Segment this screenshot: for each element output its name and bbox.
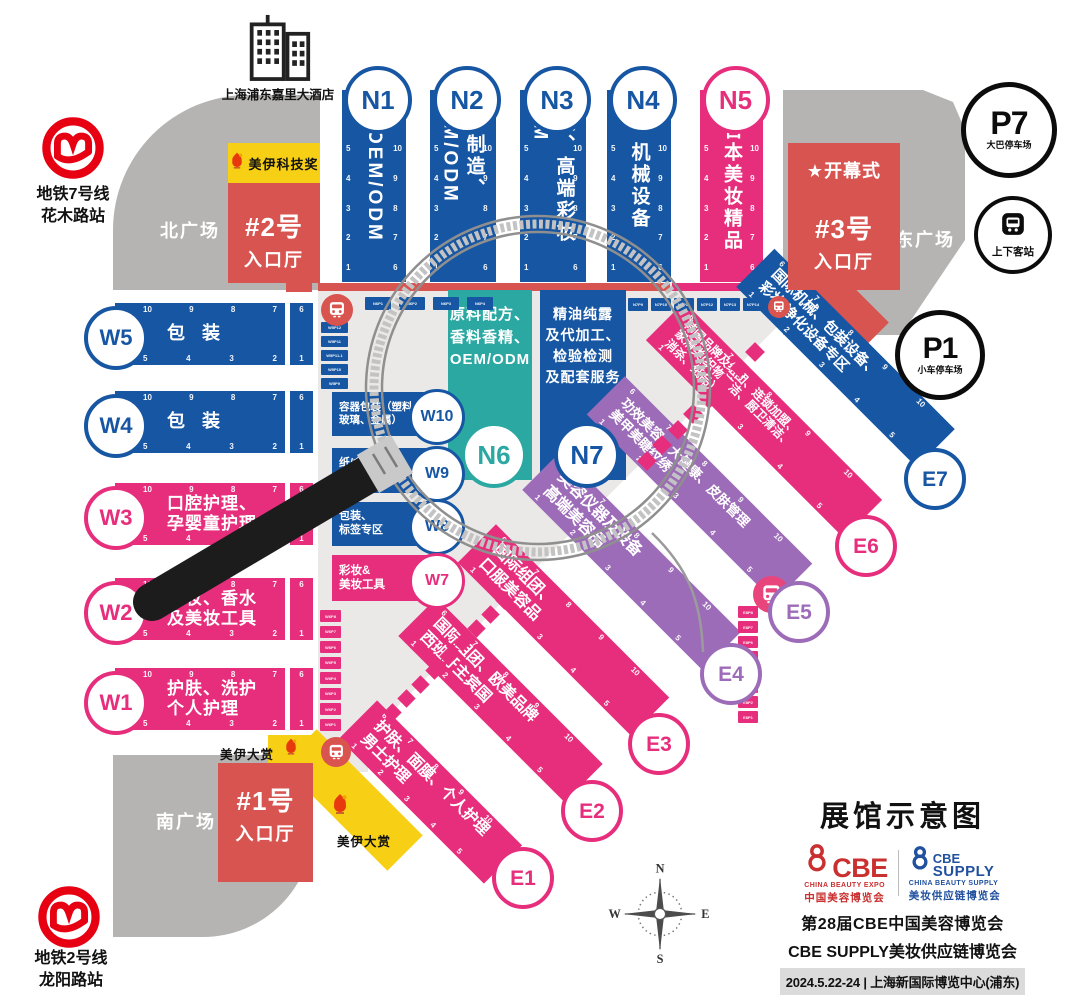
hall-number: 3 — [671, 491, 681, 501]
hall-number: 10 — [658, 144, 667, 153]
service-tag: N7P14 — [743, 298, 763, 311]
hall-number: 7 — [811, 294, 821, 304]
service-tag: N6P4 — [467, 297, 493, 310]
hall-numbers: 10987 — [143, 670, 277, 679]
north-plaza-label: 北广场 — [160, 217, 220, 243]
service-tag: E8P1 — [738, 711, 758, 723]
cbe-supply-name2: SUPPLY — [933, 865, 995, 879]
hall-label-line: 及美妆工具 — [167, 609, 257, 629]
hall-number: 6 — [290, 305, 313, 314]
hall-number: 1 — [611, 263, 615, 272]
hall-e4-badge: E4 — [700, 643, 762, 705]
hall-numbers: 5432 — [143, 534, 277, 543]
hall-n1-badge: N1 — [344, 66, 412, 134]
hall-number: 9 — [483, 174, 492, 183]
hall-label-line: 美妆工具 — [339, 578, 385, 592]
cbe-sub2: 中国美容博览会 — [804, 890, 888, 905]
hall-number: 9 — [189, 393, 193, 402]
hall-numbers: 54321 — [524, 144, 528, 272]
hall-number: 7 — [273, 670, 277, 679]
hall-number: 5 — [143, 534, 147, 543]
entrance-1-hall: 入口厅 — [218, 820, 313, 846]
hall-numbers: 5432 — [143, 629, 277, 638]
hall-number: 7 — [531, 567, 541, 577]
hall-number: 1 — [290, 534, 313, 543]
entrance-3-hall: 入口厅 — [788, 248, 900, 274]
metro-line7-station: 花木路站 — [18, 206, 128, 228]
metro-line2-station: 龙阳路站 — [16, 970, 126, 992]
hall-number: 2 — [704, 233, 708, 242]
service-tag: N6P2 — [399, 297, 425, 310]
cbe-sub1: CHINA BEAUTY EXPO — [804, 882, 888, 889]
service-tag: E8P8 — [738, 606, 758, 618]
hall-label-line: 包装、 — [339, 510, 383, 524]
hall-label-line: 标签专区 — [339, 524, 383, 538]
grand-award-label: 美伊大赏 — [337, 831, 391, 850]
hall-number: 8 — [750, 204, 759, 213]
hall-number: 9 — [189, 305, 193, 314]
hall-number: 8 — [658, 204, 667, 213]
entrance-2-hall: 入口厅 — [228, 246, 320, 272]
entrance-2: #2号 入口厅 — [228, 183, 320, 283]
hall-number: 9 — [189, 670, 193, 679]
hall-number: 3 — [229, 354, 233, 363]
service-tag: W5P10 — [321, 364, 348, 375]
hall-number: 2 — [781, 325, 791, 335]
hall-number: 7 — [750, 233, 759, 242]
cbe-supply-emblem-icon — [909, 843, 931, 878]
meiyi-award-logo-icon — [283, 737, 299, 761]
hall-number: 8 — [231, 305, 235, 314]
expo-date-venue: 2024.5.22-24 | 上海新国际博览中心(浦东) — [780, 968, 1025, 995]
hall-w1-cap: 61 — [290, 668, 313, 730]
hall-label-line: 精油纯露 — [540, 304, 626, 325]
service-tag: W5P11-1 — [321, 350, 348, 361]
hall-number: 6 — [483, 263, 492, 272]
opening-ceremony-label: 开幕式 — [824, 161, 881, 181]
hall-number: 2 — [375, 768, 385, 778]
hall-w3-cap: 61 — [290, 483, 313, 545]
hall-w5-badge: W5 — [84, 306, 148, 370]
service-tag: W6P2 — [320, 703, 341, 715]
hall-number: 8 — [631, 531, 641, 541]
hall-number: 1 — [434, 263, 438, 272]
cbe-supply-logo: CBE SUPPLY CHINA BEAUTY SUPPLY 美妆供应链博览会 — [909, 843, 1001, 903]
hall-numbers: 10987 — [143, 393, 277, 402]
compass-n: N — [656, 862, 665, 875]
hall-number: 8 — [393, 204, 402, 213]
hall-number: 9 — [456, 787, 466, 797]
hall-number: 2 — [273, 629, 277, 638]
hall-numbers: 54321 — [434, 144, 438, 272]
hall-label-line: 香料香精、 — [448, 327, 532, 350]
hall-numbers: 109876 — [483, 144, 492, 272]
metro-line2-label: 地铁2号线 龙阳路站 — [16, 948, 126, 991]
hall-numbers: 5432 — [143, 354, 277, 363]
hall-number: 8 — [573, 204, 582, 213]
hall-number: 5 — [524, 144, 528, 153]
hall-n3-badge: N3 — [523, 66, 591, 134]
hall-number: 10 — [143, 305, 152, 314]
service-tag: W6P5 — [320, 657, 341, 669]
hall-number: 1 — [290, 442, 313, 451]
meiyi-award-logo-icon — [330, 792, 350, 821]
hall-number: 6 — [290, 670, 313, 679]
hall-w8-badge: W8 — [409, 499, 465, 555]
hall-number: 4 — [428, 820, 438, 830]
metro-line7-label: 地铁7号线 花木路站 — [18, 184, 128, 227]
compass-w: W — [608, 907, 621, 921]
hall-number: 4 — [434, 174, 438, 183]
hall-w8-label: 包装、标签专区 — [339, 502, 383, 546]
hall-numbers: 5432 — [143, 719, 277, 728]
east-plaza-label: 东广场 — [895, 226, 955, 252]
parking-p1: P1 小车停车场 — [895, 310, 985, 400]
hall-number: 4 — [503, 733, 513, 743]
hall-number: 3 — [535, 632, 545, 642]
hall-number: 4 — [611, 174, 615, 183]
service-tag: W6P7 — [320, 626, 341, 638]
hall-number: 8 — [500, 670, 510, 680]
hall-number: 3 — [229, 629, 233, 638]
grand-award-badge — [268, 735, 313, 763]
hall-number: 2 — [273, 534, 277, 543]
hall-number: 1 — [704, 263, 708, 272]
hall-number: 6 — [290, 393, 313, 402]
entrance-1-name: #1号 — [218, 781, 313, 818]
entrance-1: #1号 入口厅 — [218, 763, 313, 882]
cbe-logo: CBE CHINA BEAUTY EXPO 中国美容博览会 — [804, 841, 888, 905]
hall-number: 9 — [666, 565, 676, 575]
hall-n7-badge: N7 — [554, 422, 620, 488]
hall-n5-badge: N5 — [702, 66, 770, 134]
hall-number: 4 — [524, 174, 528, 183]
hall-number: 7 — [470, 639, 480, 649]
hall-number: 2 — [273, 354, 277, 363]
hall-e3-badge: E3 — [628, 713, 690, 775]
hall-number: 8 — [699, 459, 709, 469]
hall-number: 9 — [880, 362, 890, 372]
hall-number: 3 — [229, 719, 233, 728]
pickup-dropoff-station: 上下客站 — [974, 196, 1052, 274]
meiyi-award-logo-icon — [229, 151, 245, 175]
hotel-label: 上海浦东嘉里大酒店 — [212, 84, 344, 103]
hall-number: 1 — [290, 629, 313, 638]
parking-p1-code: P1 — [923, 335, 958, 362]
hall-label-line: 口腔护理、 — [167, 494, 257, 514]
hall-number: 5 — [143, 442, 147, 451]
hall-number: 5 — [346, 144, 350, 153]
hall-w7-badge: W7 — [409, 553, 465, 609]
hall-numbers: 109876 — [573, 144, 582, 272]
hall-number: 2 — [611, 233, 615, 242]
hall-w10-badge: W10 — [409, 389, 465, 445]
hall-w4-badge: W4 — [84, 394, 148, 458]
service-tag: W6P3 — [320, 688, 341, 700]
hall-label-line: OEM/ODM — [448, 349, 532, 372]
hall-number: 2 — [273, 442, 277, 451]
hall-number: 4 — [707, 528, 717, 538]
metro-line2-icon — [36, 884, 102, 955]
service-tag: W6P1 — [320, 719, 341, 731]
hall-number: 9 — [658, 174, 667, 183]
expo-name-line1: 第28届CBE中国美容博览会 — [780, 910, 1025, 934]
bus-station-icon — [1000, 211, 1026, 242]
hall-number: 3 — [611, 204, 615, 213]
hall-numbers: 109876 — [658, 144, 667, 272]
hall-number: 3 — [402, 794, 412, 804]
hall-label-line: 孕婴童护理 — [167, 514, 257, 534]
hall-w2-cap: 61 — [290, 578, 313, 640]
hall-number: 5 — [143, 354, 147, 363]
hall-number: 7 — [393, 233, 402, 242]
metro-line2-line: 地铁2号线 — [16, 948, 126, 970]
service-tag: W6P4 — [320, 672, 341, 684]
hall-e2-badge: E2 — [561, 780, 623, 842]
metro-line7-icon — [40, 115, 106, 186]
hall-w3-badge: W3 — [84, 486, 148, 550]
hall-number: 2 — [524, 233, 528, 242]
hall-number: 4 — [186, 629, 190, 638]
hall-number: 8 — [231, 485, 235, 494]
cbe-name: CBE — [832, 857, 888, 880]
venue-map: 北广场 东广场 南广场 美伊科技奖 #2号 入口厅 ★开幕式 #3号 入口厅 #… — [0, 0, 1080, 1005]
hall-number: 7 — [483, 233, 492, 242]
hall-number: 5 — [611, 144, 615, 153]
hall-number: 2 — [434, 233, 438, 242]
hall-number: 1 — [290, 354, 313, 363]
service-tag: N7P13 — [720, 298, 740, 311]
hall-number: 10 — [143, 580, 152, 589]
service-tag: E8P7 — [738, 621, 758, 633]
hall-number: 4 — [186, 354, 190, 363]
entrance-2-name: #2号 — [228, 207, 320, 244]
hall-number: 8 — [231, 580, 235, 589]
service-tag: N7P11 — [674, 298, 694, 311]
hall-label-line: 检验检测 — [540, 346, 626, 367]
hall-w9-badge: W9 — [409, 446, 465, 502]
hall-number: 4 — [638, 598, 648, 608]
compass-e: E — [701, 907, 709, 921]
hall-numbers: 109876 — [393, 144, 402, 272]
hall-e1-badge: E1 — [492, 847, 554, 909]
legend: 展馆示意图 CBE CHINA BEAUTY EXPO 中国美容博览会 CBE … — [780, 793, 1025, 995]
service-tag: N6P1 — [365, 297, 391, 310]
hall-number: 5 — [143, 629, 147, 638]
hall-number: 9 — [750, 174, 759, 183]
hall-number: 2 — [696, 382, 706, 392]
tech-award-badge: 美伊科技奖 — [228, 143, 320, 183]
hall-number: 10 — [483, 144, 492, 153]
grand-award-label: 美伊大赏 — [220, 744, 274, 763]
parking-p7-label: 大巴停车场 — [986, 138, 1031, 151]
hall-w9-label: 纸/盒/( — [339, 448, 364, 493]
hotel-icon — [246, 10, 312, 89]
hall-number: 4 — [775, 461, 785, 471]
hall-number: 3 — [736, 422, 746, 432]
hall-number: 2 — [567, 528, 577, 538]
hall-numbers: 10987 — [143, 485, 277, 494]
star-icon: ★ — [807, 161, 824, 181]
compass-s: S — [657, 952, 664, 966]
compass-rose: N E S W — [608, 862, 712, 971]
hall-label-line: 护肤、洗护 — [167, 679, 257, 699]
hall-number: 2 — [273, 719, 277, 728]
hall-number: 10 — [573, 144, 582, 153]
hall-number: 7 — [405, 737, 415, 747]
hall-label-line: 彩妆& — [339, 564, 385, 578]
hall-number: 10 — [143, 393, 152, 402]
hall-number: 3 — [346, 204, 350, 213]
parking-p1-label: 小车停车场 — [917, 363, 962, 376]
hall-number: 8 — [563, 600, 573, 610]
hall-w5-cap: 61 — [290, 303, 313, 365]
hall-number: 7 — [273, 580, 277, 589]
hall-number: 8 — [430, 762, 440, 772]
hall-number: 5 — [434, 144, 438, 153]
parking-p7-code: P7 — [990, 109, 1027, 138]
hall-number: 9 — [735, 495, 745, 505]
hall-number: 7 — [658, 233, 667, 242]
hall-number: 5 — [704, 144, 708, 153]
hall-number: 7 — [273, 485, 277, 494]
hall-number: 7 — [273, 393, 277, 402]
hall-number: 10 — [393, 144, 402, 153]
hall-label-line: 及代加工、 — [540, 325, 626, 346]
hall-number: 2 — [346, 233, 350, 242]
hall-label-line: 及配套服务 — [540, 367, 626, 388]
hall-number: 7 — [573, 233, 582, 242]
hall-number: 8 — [483, 204, 492, 213]
hall-number: 1 — [290, 719, 313, 728]
hall-number: 9 — [596, 633, 606, 643]
service-tag: N7P9 — [628, 298, 648, 311]
service-tag: N6P3 — [433, 297, 459, 310]
hall-number: 8 — [764, 390, 774, 400]
hall-number: 7 — [597, 497, 607, 507]
hall-number: 9 — [803, 429, 813, 439]
hall-number: 3 — [603, 563, 613, 573]
hall-number: 4 — [346, 174, 350, 183]
hall-number: 4 — [852, 395, 862, 405]
hall-w1-badge: W1 — [84, 671, 148, 735]
service-tag: W5P11 — [321, 336, 348, 347]
hall-numbers: 54321 — [346, 144, 350, 272]
hall-n4-badge: N4 — [609, 66, 677, 134]
hall-number: 4 — [186, 719, 190, 728]
metro-line7-line: 地铁7号线 — [18, 184, 128, 206]
bus-icon — [768, 296, 790, 318]
hall-number: 6 — [290, 580, 313, 589]
bus-icon — [321, 294, 353, 326]
hall-number: 4 — [186, 534, 190, 543]
hall-w4-cap: 61 — [290, 391, 313, 453]
hall-label-line: /( — [339, 471, 364, 485]
hall-number: 7 — [726, 351, 736, 361]
hall-e7-badge: E7 — [904, 448, 966, 510]
hall-numbers: 54321 — [611, 144, 615, 272]
hall-number: 10 — [143, 485, 152, 494]
hall-number: 1 — [346, 263, 350, 272]
hall-label-line: 个人护理 — [167, 699, 257, 719]
hall-number: 3 — [524, 204, 528, 213]
hall-number: 4 — [568, 665, 578, 675]
expo-name-line2: CBE SUPPLY美妆供应链博览会 — [780, 938, 1025, 962]
hall-number: 3 — [229, 534, 233, 543]
tech-award-label: 美伊科技奖 — [248, 154, 318, 173]
logo-divider — [898, 850, 899, 896]
hall-number: 4 — [704, 174, 708, 183]
pickup-dropoff-label: 上下客站 — [992, 244, 1034, 259]
cbe-emblem-icon — [804, 841, 830, 880]
hall-number: 6 — [658, 263, 667, 272]
service-tag: N7P10 — [651, 298, 671, 311]
hall-number: 8 — [231, 393, 235, 402]
hall-number: 6 — [573, 263, 582, 272]
hall-label-line: 彩妆、香水 — [167, 589, 257, 609]
service-tag: N7P12 — [697, 298, 717, 311]
hall-numbers: 54321 — [704, 144, 708, 272]
entrance-3: ★开幕式 #3号 入口厅 — [788, 143, 900, 290]
hall-number: 3 — [472, 702, 482, 712]
hall-number: 9 — [189, 485, 193, 494]
hall-number: 9 — [573, 174, 582, 183]
hall-number: 9 — [393, 174, 402, 183]
hall-label-line: 包 装 — [167, 323, 226, 345]
hall-number: 8 — [845, 328, 855, 338]
hall-number: 3 — [817, 360, 827, 370]
hall-label-line: 纸/盒 — [339, 457, 364, 471]
hall-e6-badge: E6 — [835, 515, 897, 577]
hall-number: 6 — [290, 485, 313, 494]
bus-icon — [321, 737, 351, 767]
legend-logos: CBE CHINA BEAUTY EXPO 中国美容博览会 CBE SUPPLY… — [780, 845, 1025, 901]
hall-numbers: 109876 — [750, 144, 759, 272]
hall-numbers: 5432 — [143, 442, 277, 451]
hall-number: 3 — [229, 442, 233, 451]
hall-w7-label: 彩妆&美妆工具 — [339, 555, 385, 601]
service-tag: W6P6 — [320, 641, 341, 653]
entrance-3-name: #3号 — [788, 209, 900, 246]
hall-n6-badge: N6 — [461, 422, 527, 488]
hall-w2-badge: W2 — [84, 581, 148, 645]
hall-number: 6 — [393, 263, 402, 272]
south-plaza-label: 南广场 — [156, 808, 216, 834]
service-tag: W6P8 — [320, 610, 341, 622]
hall-numbers: 10987 — [143, 305, 277, 314]
hall-number: 1 — [524, 263, 528, 272]
hall-e5-badge: E5 — [768, 581, 830, 643]
hall-label-line: 包 装 — [167, 411, 226, 433]
service-tag: W5P9 — [321, 378, 348, 389]
cbe-supply-sub1: CHINA BEAUTY SUPPLY — [909, 880, 1001, 887]
legend-title: 展馆示意图 — [780, 793, 1025, 835]
hall-number: 3 — [704, 204, 708, 213]
hall-number: 5 — [143, 719, 147, 728]
hall-n6-label: 原料配方、香料香精、OEM/ODM — [448, 304, 532, 372]
hall-number: 7 — [273, 305, 277, 314]
hall-numbers: 10987 — [143, 580, 277, 589]
hall-number: 8 — [231, 670, 235, 679]
hall-number: 10 — [750, 144, 759, 153]
hall-number: 9 — [531, 701, 541, 711]
hall-number: 9 — [189, 580, 193, 589]
hall-number: 4 — [186, 442, 190, 451]
hall-number: 3 — [434, 204, 438, 213]
parking-p7: P7 大巴停车场 — [961, 82, 1057, 178]
cbe-supply-sub2: 美妆供应链博览会 — [909, 888, 1001, 903]
hall-number: 10 — [143, 670, 152, 679]
